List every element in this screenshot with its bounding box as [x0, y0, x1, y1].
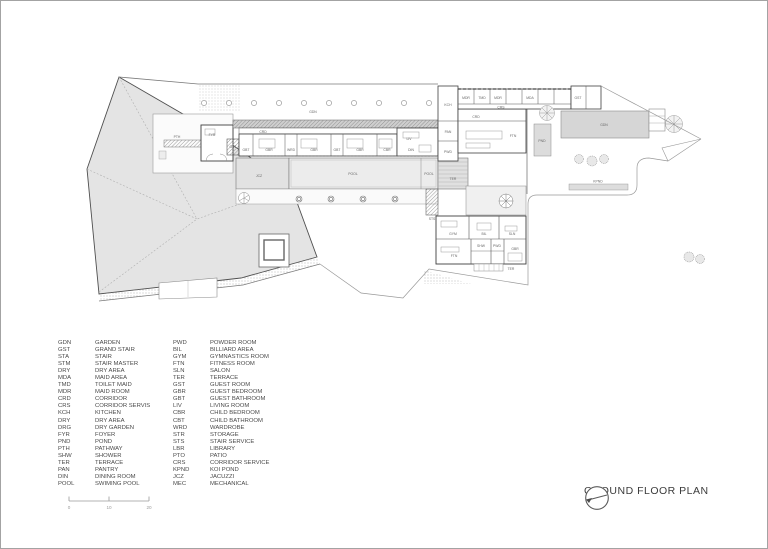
legend-row: DRY DRY AREA — [58, 368, 150, 375]
title-block: GROUND FLOOR PLAN — [584, 485, 709, 497]
legend-code: GBT — [173, 396, 210, 403]
room-label-fyr: FYR — [209, 133, 216, 137]
spiral-stair — [499, 194, 513, 208]
legend-code: PTH — [58, 446, 95, 453]
tree — [666, 116, 683, 133]
legend-code: STR — [173, 432, 210, 439]
room-label-pool: POOL — [348, 172, 358, 176]
legend-code: LBR — [173, 446, 210, 453]
legend-row: KPND KOI POND — [173, 467, 269, 474]
room-label-mdr: MDR — [494, 96, 502, 100]
legend-row: CBT CHILD BATHROOM — [173, 418, 269, 425]
legend-code: GST — [58, 347, 95, 354]
room-label-cbr: CBR — [383, 148, 391, 152]
legend-row: PWD POWDER ROOM — [173, 340, 269, 347]
tree — [540, 106, 555, 121]
legend-column-left: GDN GARDEN GST GRAND STAIR STA STAIR STM… — [58, 340, 150, 488]
bedroom-wing: CRD GBT GBR WRD GBR GBT GBR CBR LIV — [233, 120, 438, 156]
room-label-pth: PTH — [174, 135, 181, 139]
legend-code: MDA — [58, 375, 95, 382]
room-label-ter: TER — [450, 177, 457, 181]
legend-code: MDR — [58, 389, 95, 396]
legend-name: GUEST ROOM — [210, 382, 250, 389]
legend-code: DRY — [58, 368, 95, 375]
legend-column-right: PWD POWDER ROOM BIL BILLIARD AREA GYM GY… — [173, 340, 269, 488]
legend-code: STS — [173, 439, 210, 446]
legend-row: CRS CORRIDOR SERVIS — [58, 403, 150, 410]
maid-wing: MDR TMD MDR MDA CRS GST — [458, 86, 601, 110]
legend-name: GUEST BEDROOM — [210, 389, 262, 396]
legend-name: CORRIDOR SERVIS — [95, 403, 150, 410]
legend-code: FTN — [173, 361, 210, 368]
legend-name: PATIO — [210, 453, 227, 460]
legend-name: TERRACE — [210, 375, 238, 382]
legend-row: TMD TOILET MAID — [58, 382, 150, 389]
legend-row: STR STORAGE — [173, 432, 269, 439]
room-label-gst: GST — [230, 145, 237, 149]
legend-row: GDN GARDEN — [58, 340, 150, 347]
legend-code: SLN — [173, 368, 210, 375]
room-label-gbr: GBR — [356, 148, 364, 152]
room-label-ter: TER — [508, 267, 515, 271]
legend-name: CHILD BATHROOM — [210, 418, 263, 425]
legend-row: FTN FITNESS ROOM — [173, 361, 269, 368]
legend-code: KCH — [58, 410, 95, 417]
room-label-gbt: GBT — [334, 148, 341, 152]
room-label-crd: CRD — [259, 130, 267, 134]
room-label-pwd: PWD — [493, 244, 501, 248]
scale-tick-10: 10 — [106, 505, 112, 510]
room-label-wrd: WRD — [287, 148, 296, 152]
room-label-bil: BIL — [481, 232, 486, 236]
legend-row: GBR GUEST BEDROOM — [173, 389, 269, 396]
legend-name: DRY AREA — [95, 368, 125, 375]
legend-row: LBR LIBRARY — [173, 446, 269, 453]
legend-code: GBR — [173, 389, 210, 396]
legend-name: DRY GARDEN — [95, 425, 134, 432]
legend-name: GARDEN — [95, 340, 120, 347]
legend-name: WARDROBE — [210, 425, 244, 432]
legend-row: MDR MAID ROOM — [58, 389, 150, 396]
legend-row: CRS CORRIDOR SERVICE — [173, 460, 269, 467]
legend-name: JACUZZI — [210, 474, 234, 481]
legend-code: CRS — [173, 460, 210, 467]
legend-name: CHILD BEDROOM — [210, 410, 260, 417]
legend-name: STAIR SERVICE — [210, 439, 254, 446]
legend-code: PTO — [173, 453, 210, 460]
entry-bridge — [164, 140, 204, 147]
north-arrow-icon — [584, 485, 610, 511]
legend-name: CORRIDOR SERVICE — [210, 460, 269, 467]
room-label-ftn: FTN — [451, 254, 458, 258]
bushes — [575, 155, 705, 264]
legend-code: GDN — [58, 340, 95, 347]
room-label-kpnd: KPND — [593, 180, 603, 184]
legend-name: CORRIDOR — [95, 396, 127, 403]
legend-code: DIN — [58, 474, 95, 481]
room-label-ftn: FTN — [510, 134, 517, 138]
legend-row: TER TERRACE — [58, 460, 150, 467]
legend-code: CRS — [58, 403, 95, 410]
lower-block: STS GYM BIL SLN — [426, 186, 526, 271]
legend-row: MDA MAID AREA — [58, 375, 150, 382]
legend-row: PND POND — [58, 439, 150, 446]
legend-name: MAID ROOM — [95, 389, 130, 396]
legend-row: STS STAIR SERVICE — [173, 439, 269, 446]
legend-name: GYMNASTICS ROOM — [210, 354, 269, 361]
room-label-shw: SHW — [477, 244, 486, 248]
legend-name: SALON — [210, 368, 230, 375]
room-label-liv: LIV — [406, 137, 412, 141]
legend-name: SHOWER — [95, 453, 122, 460]
legend-row: JCZ JACUZZI — [173, 474, 269, 481]
terrace — [236, 189, 438, 204]
legend-name: TERRACE — [95, 460, 123, 467]
koi-pond — [569, 184, 628, 190]
legend-code: JCZ — [173, 474, 210, 481]
legend-name: LIVING ROOM — [210, 403, 249, 410]
legend-row: DRY DRY AREA — [58, 418, 150, 425]
legend-code: CBR — [173, 410, 210, 417]
legend-row: PAN PANTRY — [58, 467, 150, 474]
round-stair — [239, 193, 250, 204]
entry-court: PTH FYR GST — [153, 114, 239, 173]
legend-name: STAIR MASTER — [95, 361, 138, 368]
legend-name: LIBRARY — [210, 446, 235, 453]
legend-row: DIN DINING ROOM — [58, 474, 150, 481]
legend-name: MAID AREA — [95, 375, 127, 382]
legend-name: GUEST BATHROOM — [210, 396, 265, 403]
room-label-gst: GST — [575, 96, 582, 100]
scale-tick-20: 20 — [146, 505, 152, 510]
drawing-sheet: PTH FYR GST GDN — [0, 0, 768, 549]
legend-code: GYM — [173, 354, 210, 361]
legend-name: TOILET MAID — [95, 382, 132, 389]
pergola — [233, 120, 438, 128]
legend-name: DINING ROOM — [95, 474, 136, 481]
terrace-stair — [438, 158, 468, 189]
legend-row: SHW SHOWER — [58, 453, 150, 460]
legend-row: KCH KITCHEN — [58, 410, 150, 417]
legend-row: STA STAIR — [58, 354, 150, 361]
legend-code: TER — [173, 375, 210, 382]
legend-row: PTO PATIO — [173, 453, 269, 460]
legend-row: LIV LIVING ROOM — [173, 403, 269, 410]
room-label-pool: POOL — [424, 172, 434, 176]
room-label-jcz: JCZ — [256, 174, 262, 178]
legend-code: POOL — [58, 481, 95, 488]
legend-row: SLN SALON — [173, 368, 269, 375]
scale-bar: 0 10 20 — [68, 497, 152, 511]
legend-code: CBT — [173, 418, 210, 425]
legend-name: GRAND STAIR — [95, 347, 135, 354]
jacuzzi — [236, 158, 289, 189]
legend-row: GST GUEST ROOM — [173, 382, 269, 389]
legend-name: POND — [95, 439, 112, 446]
legend-code: LIV — [173, 403, 210, 410]
room-label-gbt: GBT — [243, 148, 250, 152]
legend-code: SHW — [58, 453, 95, 460]
room-label-tmd: TMD — [478, 96, 486, 100]
room-label-gdn-top: GDN — [309, 110, 317, 114]
legend-code: GST — [173, 382, 210, 389]
legend-name: PANTRY — [95, 467, 118, 474]
legend-row: POOL SWIMING POOL — [58, 481, 150, 488]
legend-name: STORAGE — [210, 432, 239, 439]
legend-name: STAIR — [95, 354, 112, 361]
legend-code: FYR — [58, 432, 95, 439]
legend-name: BILLIARD AREA — [210, 347, 254, 354]
legend-row: CRD CORRIDOR — [58, 396, 150, 403]
room-label-gbr: GBR — [265, 148, 273, 152]
room-label-crd: CRD — [472, 115, 480, 119]
legend-code: MEC — [173, 481, 210, 488]
legend-code: TMD — [58, 382, 95, 389]
legend-row: MEC MECHANICAL — [173, 481, 269, 488]
legend-row: GYM GYMNASTICS ROOM — [173, 354, 269, 361]
legend-code: STM — [58, 361, 95, 368]
legend-code: DRG — [58, 425, 95, 432]
room-label-pan: PAN — [445, 130, 452, 134]
legend-code: STA — [58, 354, 95, 361]
legend-row: STM STAIR MASTER — [58, 361, 150, 368]
room-label-kch: KCH — [444, 103, 452, 107]
legend-name: FITNESS ROOM — [210, 361, 255, 368]
scale-tick-0: 0 — [68, 505, 71, 510]
service-stair — [426, 189, 438, 215]
legend-code: BIL — [173, 347, 210, 354]
room-label-gym: GYM — [449, 232, 457, 236]
legend-code: CRD — [58, 396, 95, 403]
legend-name: KOI POND — [210, 467, 239, 474]
legend-code: PAN — [58, 467, 95, 474]
legend-code: PND — [58, 439, 95, 446]
room-label-pnd: PND — [538, 139, 546, 143]
legend-name: KITCHEN — [95, 410, 121, 417]
room-label-mda: MDA — [526, 96, 534, 100]
legend-code: PWD — [173, 340, 210, 347]
legend-row: GST GRAND STAIR — [58, 347, 150, 354]
room-label-sts: STS — [429, 217, 436, 221]
legend-row: DRG DRY GARDEN — [58, 425, 150, 432]
room-label-sln: SLN — [509, 232, 516, 236]
room-label-pwd: PWD — [444, 150, 452, 154]
room-label-gbr: GBR — [511, 247, 519, 251]
legend-code: WRD — [173, 425, 210, 432]
room-label-gbr: GBR — [310, 148, 318, 152]
legend-row: WRD WARDROBE — [173, 425, 269, 432]
legend-row: FYR FOYER — [58, 432, 150, 439]
swimming-pool — [289, 158, 438, 189]
legend-code: KPND — [173, 467, 210, 474]
legend-row: GBT GUEST BATHROOM — [173, 396, 269, 403]
legend-row: TER TERRACE — [173, 375, 269, 382]
legend-row: PTH PATHWAY — [58, 446, 150, 453]
legend-name: SWIMING POOL — [95, 481, 140, 488]
legend-code: TER — [58, 460, 95, 467]
legend-name: MECHANICAL — [210, 481, 249, 488]
room-label-crs: CRS — [497, 106, 505, 110]
legend-row: BIL BILLIARD AREA — [173, 347, 269, 354]
room-label-gdn: GDN — [600, 123, 608, 127]
legend-name: DRY AREA — [95, 418, 125, 425]
legend-code: DRY — [58, 418, 95, 425]
legend-name: PATHWAY — [95, 446, 123, 453]
room-label-mdr: MDR — [462, 96, 470, 100]
legend-row: CBR CHILD BEDROOM — [173, 410, 269, 417]
room-label-din: DIN — [408, 148, 414, 152]
legend-name: POWDER ROOM — [210, 340, 256, 347]
right-garden: PND GDN KPND — [534, 106, 705, 264]
legend-name: FOYER — [95, 432, 115, 439]
